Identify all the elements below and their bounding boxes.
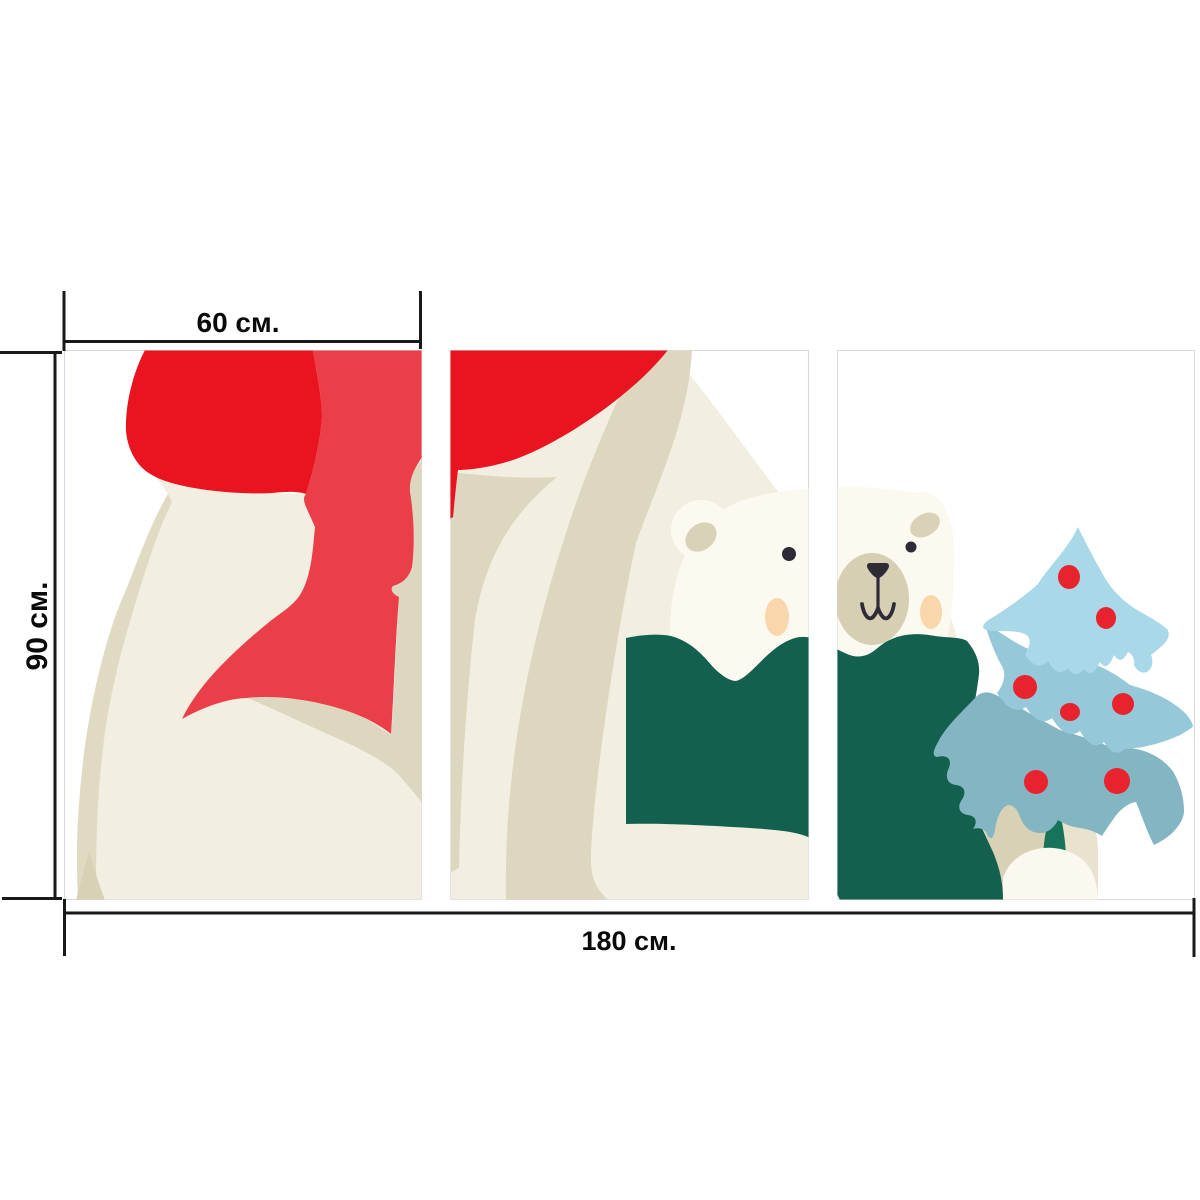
svg-text:90 см.: 90 см.: [21, 582, 54, 671]
svg-text:60 см.: 60 см.: [197, 307, 280, 338]
svg-text:180 см.: 180 см.: [581, 926, 676, 956]
